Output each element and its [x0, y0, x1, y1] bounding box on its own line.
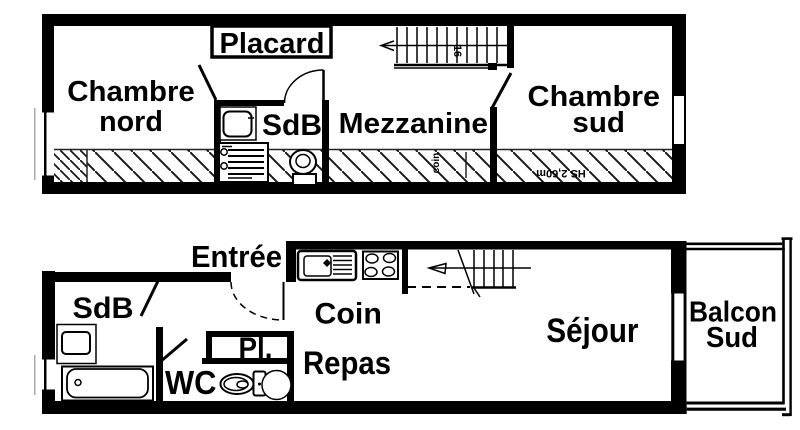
- svg-text:SdB: SdB: [73, 292, 134, 325]
- svg-text:SdB: SdB: [262, 109, 322, 142]
- svg-text:Placard: Placard: [220, 28, 325, 60]
- svg-text:16: 16: [451, 45, 463, 57]
- svg-text:Pl.: Pl.: [239, 332, 273, 365]
- svg-text:WC: WC: [165, 364, 217, 401]
- svg-text:nord: nord: [99, 106, 163, 138]
- svg-text:Chambre: Chambre: [67, 76, 195, 108]
- svg-text:Coin: Coin: [315, 298, 382, 331]
- svg-text:coin: coin: [431, 153, 442, 174]
- svg-text:HS 2,60m: HS 2,60m: [536, 167, 586, 179]
- svg-text:Mezzanine: Mezzanine: [339, 108, 488, 140]
- svg-text:Séjour: Séjour: [546, 312, 638, 350]
- svg-text:Repas: Repas: [303, 345, 391, 381]
- svg-text:sud: sud: [572, 107, 625, 139]
- svg-text:Sud: Sud: [706, 322, 758, 354]
- svg-text:Entrée: Entrée: [191, 239, 282, 274]
